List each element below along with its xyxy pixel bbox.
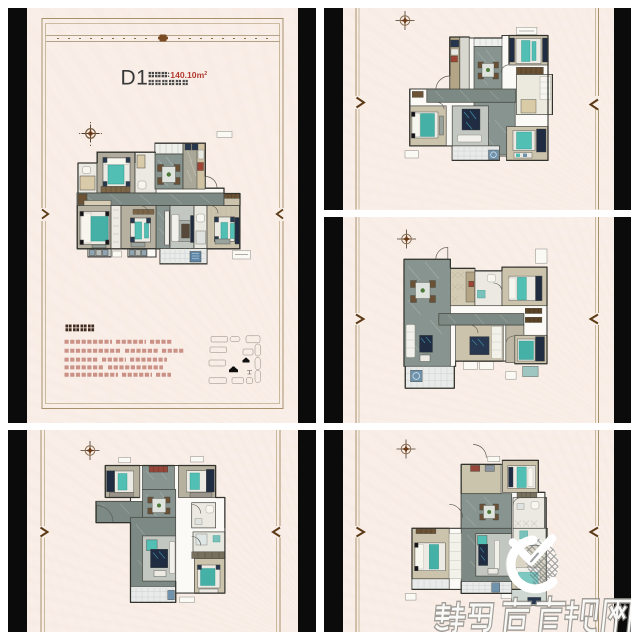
svg-text:D1: D1	[121, 67, 149, 90]
svg-text:140.10m2: 140.10m2	[170, 70, 207, 80]
